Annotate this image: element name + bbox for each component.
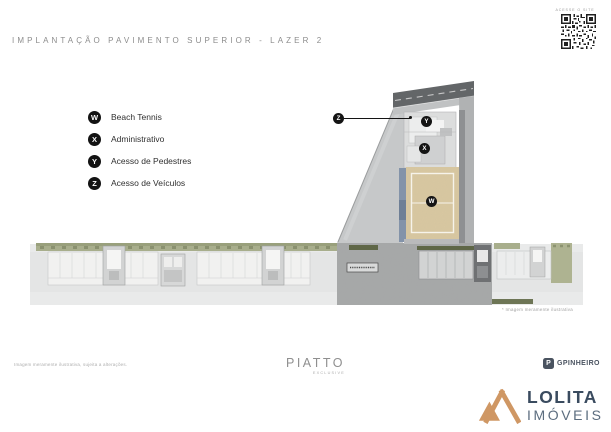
realtor-brand-suffix: IMÓVEIS — [527, 408, 604, 422]
realtor-logo-icon — [477, 387, 521, 424]
unit-block-1 — [48, 246, 158, 285]
marker-z-leader-line — [344, 118, 410, 119]
site-plan-page: IMPLANTAÇÃO PAVIMENTO SUPERIOR - LAZER 2… — [0, 0, 611, 432]
unit-block-3 — [497, 247, 551, 279]
housing-strip — [30, 243, 583, 305]
plan-marker-y: Y — [421, 116, 432, 127]
plan-marker-w: W — [426, 196, 437, 207]
developer-logo: PIATTO EXCLUSIVE — [286, 356, 345, 375]
construction-logo: P GPINHEIRO — [543, 358, 600, 369]
service-core — [161, 254, 185, 286]
construction-logo-icon: P — [543, 358, 554, 369]
realtor-logo-text: LOLITA IMÓVEIS — [527, 389, 604, 423]
construction-brand-name: GPINHEIRO — [557, 360, 600, 367]
realtor-brand-name: LOLITA — [527, 389, 604, 407]
boundary-wall — [459, 96, 474, 243]
plan-marker-x: X — [419, 143, 430, 154]
marker-z-leader-dot — [409, 116, 412, 119]
unit-block-2 — [197, 246, 310, 285]
developer-tagline: EXCLUSIVE — [286, 371, 345, 375]
plan-note: * Imagem meramente ilustrativa — [502, 307, 573, 312]
plan-marker-z: Z — [333, 113, 344, 124]
paved-court — [337, 243, 492, 305]
realtor-logo: LOLITA IMÓVEIS — [477, 387, 604, 424]
developer-brand-name: PIATTO — [286, 356, 345, 370]
image-disclaimer: Imagem meramente ilustrativa, sujeita a … — [14, 362, 127, 367]
